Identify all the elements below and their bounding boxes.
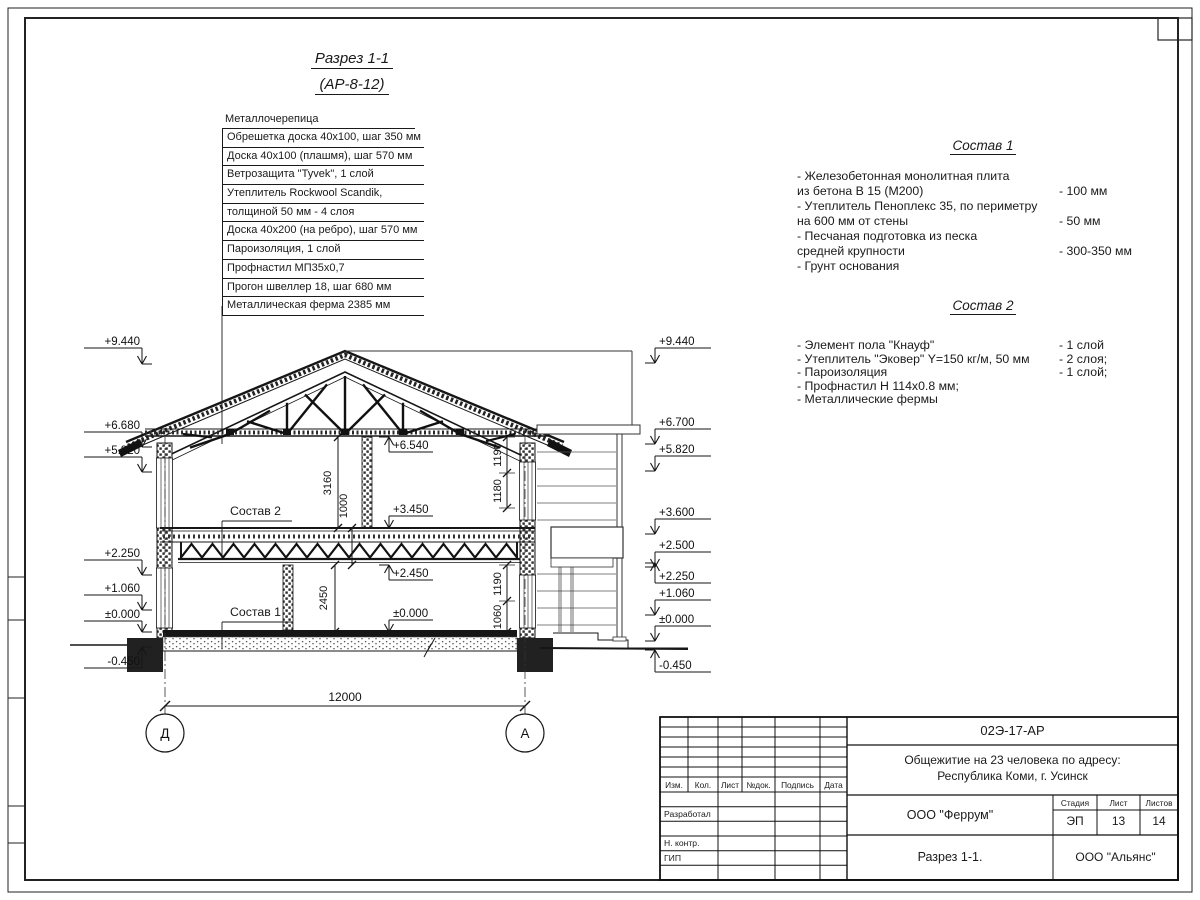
- sostav-item-text: - Грунт основания: [797, 259, 1059, 274]
- drawing-sheet: { "drawing": { "title_line1": "Разрез 1-…: [0, 0, 1200, 900]
- sostav-item-value: - 50 мм: [1059, 199, 1167, 229]
- elevation-marker: +9.440: [645, 336, 711, 363]
- sostav-item: - Грунт основания: [797, 259, 1169, 274]
- elevation-marker: ±0.000: [645, 614, 711, 641]
- title-block-role: Н. контр.: [661, 836, 720, 850]
- svg-text:+6.680: +6.680: [105, 420, 141, 432]
- sostav-item-text: - Песчаная подготовка из песка средней к…: [797, 229, 1059, 259]
- sostav-item: - Песчаная подготовка из песка средней к…: [797, 229, 1169, 259]
- partition-1f: [283, 565, 293, 630]
- elevation-marker: +6.540: [379, 437, 433, 452]
- elevation-marker: +2.450: [379, 565, 433, 580]
- vertical-dimension: 1180: [492, 479, 504, 503]
- section-label-sostav2: Состав 2: [230, 504, 281, 518]
- svg-text:+5.820: +5.820: [105, 445, 141, 457]
- footing-right: [517, 638, 553, 672]
- design-company: ООО "Феррум": [847, 808, 1053, 822]
- elevation-marker: +2.250: [84, 548, 152, 575]
- sostav-item-value: - 2 слоя;: [1059, 353, 1167, 367]
- sostav-item-text: - Металлические фермы: [797, 393, 1059, 407]
- sheets-label: Листов: [1140, 798, 1178, 808]
- sostav-item-text: - Профнастил Н 114х0.8 мм;: [797, 380, 1059, 394]
- revision-col-header: Изм.: [660, 780, 688, 790]
- svg-text:+1.060: +1.060: [659, 588, 695, 600]
- svg-text:+1.060: +1.060: [105, 583, 141, 595]
- revision-col-header: Подпись: [775, 780, 820, 790]
- sostav-item-text: - Утеплитель Пеноплекс 35, по периметру …: [797, 199, 1059, 229]
- vertical-dimension: 3160: [322, 471, 334, 495]
- roof-layer-row: Утеплитель Rockwool Scandik,: [223, 185, 424, 204]
- sostav-item-text: - Железобетонная монолитная плита из бет…: [797, 169, 1059, 199]
- svg-text:±0.000: ±0.000: [659, 614, 694, 626]
- sostav2-title: Состав 2: [950, 298, 1017, 315]
- span-dimension: 12000: [328, 690, 362, 704]
- section-label-sostav1: Состав 1: [230, 605, 281, 619]
- elevation-marker: +6.680: [84, 420, 152, 447]
- svg-text:+6.700: +6.700: [659, 417, 695, 429]
- sostav-item-value: - 300-350 мм: [1059, 229, 1167, 259]
- elevation-marker: +3.600: [645, 507, 711, 534]
- sostav-item: - Утеплитель Пеноплекс 35, по периметру …: [797, 199, 1169, 229]
- revision-col-header: Дата: [820, 780, 847, 790]
- elevation-marker: +9.440: [84, 336, 152, 364]
- leader-lines: [222, 306, 292, 649]
- sostav-item: - Пароизоляция- 1 слой;: [797, 366, 1169, 380]
- fascia-right: [547, 439, 572, 457]
- floor-truss: [181, 544, 517, 558]
- svg-text:-0.450: -0.450: [107, 656, 140, 668]
- contractor: ООО "Альянс": [1053, 850, 1178, 864]
- revision-col-header: Кол.: [688, 780, 718, 790]
- sostav-item: - Профнастил Н 114х0.8 мм;: [797, 380, 1169, 394]
- elevation-marker: +5.820: [645, 444, 711, 471]
- roof-layer-row: Металлическая ферма 2385 мм: [223, 297, 424, 316]
- sheets-value: 14: [1140, 814, 1178, 828]
- window-right-1f: [520, 575, 536, 628]
- stage-label: Стадия: [1053, 798, 1097, 808]
- elevation-marker: -0.450: [645, 650, 711, 672]
- svg-text:+9.440: +9.440: [659, 336, 695, 348]
- roof-layers-header: Металлочерепица: [222, 111, 415, 129]
- stage-value: ЭП: [1053, 814, 1097, 828]
- drawing-title-line2: (АР-8-12): [315, 76, 388, 95]
- sostav-item-text: - Утеплитель "Эковер" Y=150 кг/м, 50 мм: [797, 353, 1059, 367]
- svg-text:+2.250: +2.250: [659, 571, 695, 583]
- svg-text:+2.250: +2.250: [105, 548, 141, 560]
- vertical-dimension: 1060: [492, 605, 504, 629]
- roof-layer-row: Доска 40х100 (плашмя), шаг 570 мм: [223, 148, 424, 167]
- elevation-marker: +3.450: [379, 504, 433, 528]
- elevation-marker: +6.700: [645, 417, 711, 444]
- dimensions: 120003160100024501190118011901060: [160, 433, 530, 711]
- svg-text:+6.540: +6.540: [393, 440, 429, 452]
- svg-text:+9.440: +9.440: [105, 336, 141, 348]
- window-left-1f: [157, 568, 173, 628]
- project-name: Общежитие на 23 человека по адресу: Респ…: [847, 752, 1178, 784]
- sheet-value: 13: [1097, 814, 1140, 828]
- sostav-item-value: [1059, 259, 1167, 274]
- title-block-role: Разработал: [661, 807, 720, 821]
- sheet-label: Лист: [1097, 798, 1140, 808]
- axes: ДА: [146, 435, 544, 752]
- sostav1-list: Состав 1 - Железобетонная монолитная пли…: [797, 138, 1169, 274]
- sostav-item: - Утеплитель "Эковер" Y=150 кг/м, 50 мм-…: [797, 353, 1169, 367]
- axis-bubble-label: А: [520, 726, 529, 741]
- svg-text:+2.500: +2.500: [659, 540, 695, 552]
- revision-col-header: №док.: [742, 780, 775, 790]
- sostav-item-text: - Пароизоляция: [797, 366, 1059, 380]
- elevation-marker: +1.060: [645, 588, 711, 615]
- svg-text:+3.600: +3.600: [659, 507, 695, 519]
- annex-elevation: [537, 425, 640, 641]
- roof-layer-row: Обрешетка доска 40х100, шаг 350 мм: [223, 129, 424, 148]
- svg-text:+5.820: +5.820: [659, 444, 695, 456]
- sostav-item: - Железобетонная монолитная плита из бет…: [797, 169, 1169, 199]
- vertical-dimension: 2450: [318, 586, 330, 610]
- roof-layer-row: Профнастил МП35х0,7: [223, 260, 424, 279]
- window-right-2f: [520, 462, 536, 520]
- drawing-title-line1: Разрез 1-1: [311, 50, 393, 69]
- svg-text:-0.450: -0.450: [659, 660, 692, 672]
- sostav2-list: Состав 2 - Элемент пола "Кнауф"- 1 слой-…: [797, 298, 1169, 407]
- vertical-dimension: 1190: [492, 443, 504, 467]
- elevation-marker: +5.820: [84, 445, 152, 472]
- elevation-marker: -0.450: [84, 647, 152, 668]
- vertical-dimension: 1190: [492, 572, 504, 596]
- window-left-2f: [157, 458, 173, 528]
- vertical-dimension: 1000: [338, 494, 350, 518]
- roof-layer-row: Прогон швеллер 18, шаг 680 мм: [223, 279, 424, 298]
- drawing-title: Разрез 1-1 (АР-8-12): [262, 46, 442, 98]
- porch-canopy: [551, 527, 623, 558]
- sostav-item-value: - 1 слой;: [1059, 366, 1167, 380]
- title-block-role: ГИП: [661, 851, 720, 865]
- roof-layer-row: Пароизоляция, 1 слой: [223, 241, 424, 260]
- elevation-marker: ±0.000: [379, 608, 433, 632]
- sheet-title: Разрез 1-1.: [847, 850, 1053, 864]
- doc-number: 02Э-17-АР: [847, 723, 1178, 738]
- sostav-item-value: [1059, 393, 1167, 407]
- sostav-item-value: - 100 мм: [1059, 169, 1167, 199]
- sostav-item: - Элемент пола "Кнауф"- 1 слой: [797, 339, 1169, 353]
- roof-layers-table: Металлочерепица Обрешетка доска 40х100, …: [222, 111, 424, 316]
- sostav-item-text: - Элемент пола "Кнауф": [797, 339, 1059, 353]
- partition-2f: [362, 437, 372, 528]
- svg-text:+2.450: +2.450: [393, 568, 429, 580]
- axis-bubble-label: Д: [160, 726, 169, 741]
- elevation-marker: ±0.000: [84, 609, 152, 632]
- elevation-marker: +1.060: [84, 583, 152, 610]
- sostav-item-value: - 1 слой: [1059, 339, 1167, 353]
- revision-col-header: Лист: [718, 780, 742, 790]
- roof-layer-row: Ветрозащита "Tyvek", 1 слой: [223, 166, 424, 185]
- roof-layer-row: толщиной 50 мм - 4 слоя: [223, 204, 424, 223]
- roof-layer-row: Доска 40х200 (на ребро), шаг 570 мм: [223, 222, 424, 241]
- svg-text:+3.450: +3.450: [393, 504, 429, 516]
- elevation-marker: +2.250: [645, 563, 711, 583]
- roof-truss: [183, 376, 515, 448]
- sostav-item: - Металлические фермы: [797, 393, 1169, 407]
- svg-text:±0.000: ±0.000: [393, 608, 428, 620]
- svg-text:±0.000: ±0.000: [105, 609, 140, 621]
- sostav1-title: Состав 1: [950, 138, 1017, 155]
- sostav-item-value: [1059, 380, 1167, 394]
